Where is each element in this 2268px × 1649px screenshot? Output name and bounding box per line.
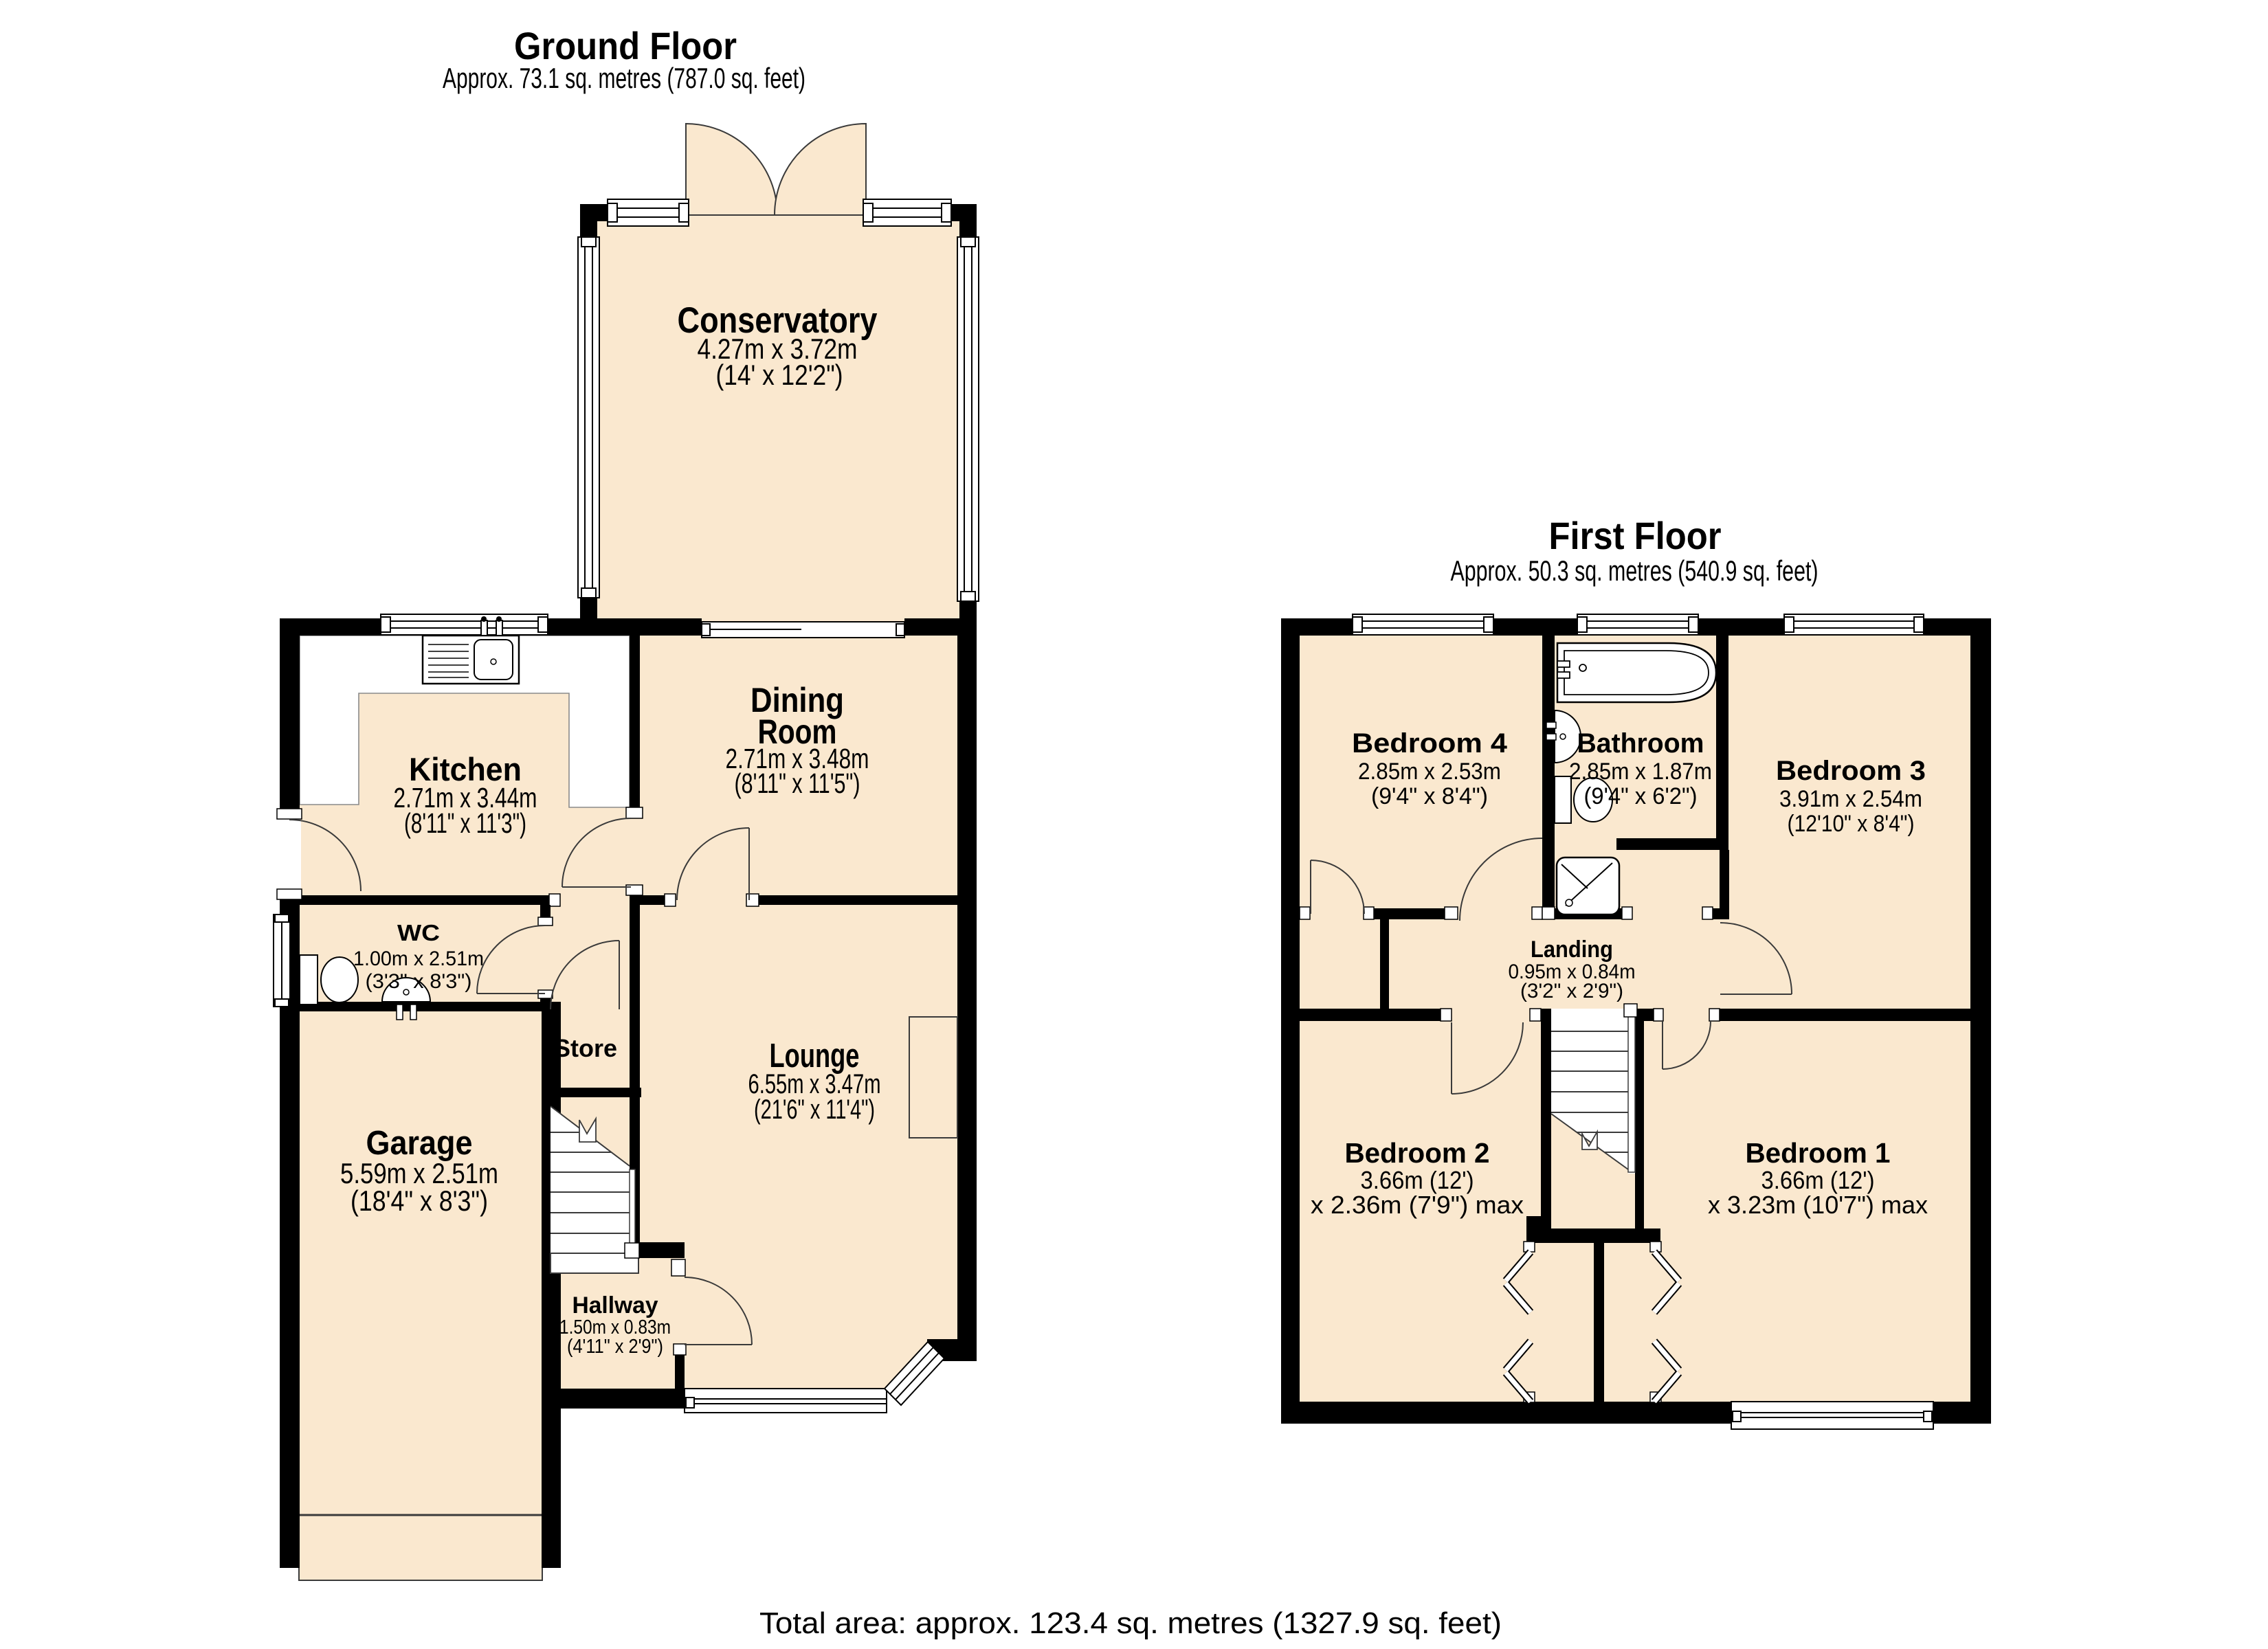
svg-text:(3'3" x 8'3"): (3'3" x 8'3") xyxy=(366,970,472,993)
svg-text:Bedroom 1: Bedroom 1 xyxy=(1746,1137,1891,1169)
svg-text:1.00m x 2.51m: 1.00m x 2.51m xyxy=(353,947,484,970)
svg-text:WC: WC xyxy=(397,920,440,945)
svg-text:Bedroom 4: Bedroom 4 xyxy=(1352,728,1508,759)
svg-text:x 2.36m (7'9") max: x 2.36m (7'9") max xyxy=(1311,1191,1524,1219)
svg-text:Store: Store xyxy=(554,1034,617,1062)
svg-text:3.66m (12'): 3.66m (12') xyxy=(1361,1166,1474,1194)
svg-text:Approx. 73.1 sq. metres (787.0: Approx. 73.1 sq. metres (787.0 sq. feet) xyxy=(443,62,805,94)
svg-text:2.85m x 2.53m: 2.85m x 2.53m xyxy=(1358,759,1501,785)
svg-text:Landing: Landing xyxy=(1531,936,1613,963)
svg-text:First Floor: First Floor xyxy=(1549,514,1722,557)
svg-text:(4'11" x 2'9"): (4'11" x 2'9") xyxy=(567,1336,663,1358)
svg-text:(8'11" x 11'3"): (8'11" x 11'3") xyxy=(404,807,526,839)
svg-text:(18'4" x 8'3"): (18'4" x 8'3") xyxy=(351,1185,488,1217)
svg-text:Bedroom 3: Bedroom 3 xyxy=(1776,756,1926,786)
svg-text:3.66m (12'): 3.66m (12') xyxy=(1761,1166,1875,1194)
svg-text:(3'2" x 2'9"): (3'2" x 2'9") xyxy=(1520,980,1623,1002)
svg-text:Approx. 50.3 sq. metres (540.9: Approx. 50.3 sq. metres (540.9 sq. feet) xyxy=(1451,554,1819,587)
svg-text:Hallway: Hallway xyxy=(572,1292,658,1319)
svg-text:(9'4" x 6'2"): (9'4" x 6'2") xyxy=(1584,783,1698,809)
svg-text:(12'10" x 8'4"): (12'10" x 8'4") xyxy=(1788,811,1915,837)
svg-text:x 3.23m (10'7") max: x 3.23m (10'7") max xyxy=(1708,1191,1928,1219)
svg-text:2.85m x 1.87m: 2.85m x 1.87m xyxy=(1569,759,1712,785)
svg-text:Garage: Garage xyxy=(366,1125,473,1162)
svg-text:(21'6" x 11'4"): (21'6" x 11'4") xyxy=(754,1095,875,1125)
svg-text:(8'11" x 11'5"): (8'11" x 11'5") xyxy=(735,767,860,799)
svg-text:Bathroom: Bathroom xyxy=(1577,728,1704,759)
svg-text:Ground Floor: Ground Floor xyxy=(514,24,737,67)
svg-text:(9'4" x 8'4"): (9'4" x 8'4") xyxy=(1371,783,1488,809)
svg-text:(14' x 12'2"): (14' x 12'2") xyxy=(716,359,843,391)
svg-text:Total area: approx. 123.4 sq.: Total area: approx. 123.4 sq. metres (13… xyxy=(759,1606,1502,1640)
svg-text:3.91m x 2.54m: 3.91m x 2.54m xyxy=(1779,786,1922,812)
svg-text:Bedroom 2: Bedroom 2 xyxy=(1345,1137,1490,1169)
